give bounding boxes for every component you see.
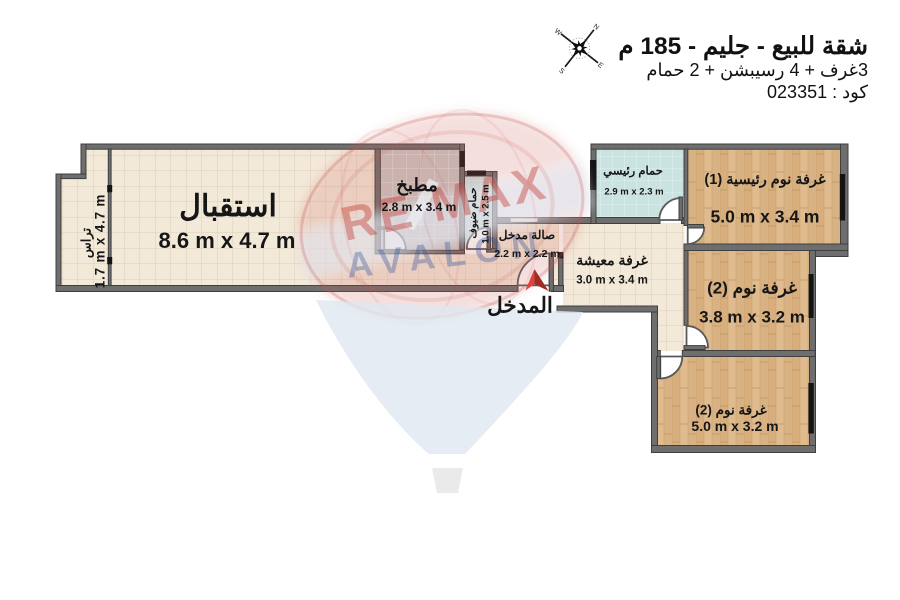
- svg-text:S: S: [557, 67, 565, 76]
- svg-text:W: W: [553, 28, 563, 38]
